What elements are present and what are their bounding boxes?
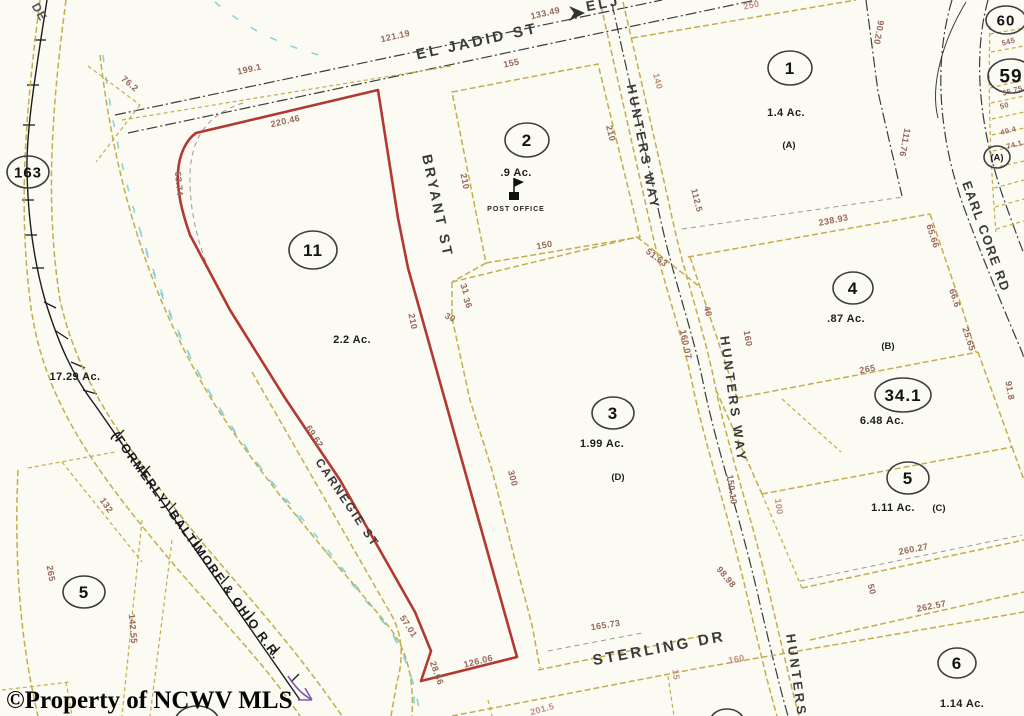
dim-label: 140 — [651, 72, 665, 90]
acreage-label: 1.14 Ac. — [940, 698, 984, 710]
post-office-icon — [509, 178, 524, 200]
dim-label: 36 — [461, 296, 474, 310]
parcel-number: 5 — [903, 469, 913, 488]
poi-label: POST OFFICE — [487, 206, 545, 213]
dim-label: 238.93 — [818, 212, 849, 228]
dim-label: 262.57 — [916, 598, 947, 614]
parcel-number: (A) — [990, 152, 1003, 163]
parcel-marker-3: 3 — [592, 397, 634, 429]
parcel-marker-2: 2 — [505, 123, 549, 157]
dim-label: 91.8 — [1003, 380, 1016, 401]
street-label-carnegie: CARNEGIE ST — [312, 456, 382, 550]
sub-letter-label: (A) — [782, 140, 795, 151]
sub-letter-label: (D) — [611, 472, 624, 483]
dim-label: 63.74 — [173, 171, 185, 196]
railroad-track — [22, 0, 312, 700]
dim-label: 265 — [45, 565, 58, 583]
street-labels: EL JADID ST ELJ BRYANT ST HUNTERS WAY HU… — [29, 0, 1014, 716]
acreage-label: 6.48 Ac. — [860, 415, 904, 427]
dim-label: 210 — [458, 172, 471, 190]
street-label-sterling: STERLING DR — [591, 628, 727, 669]
dim-label: 98.98 — [715, 564, 738, 589]
dim-label: 150 — [536, 239, 554, 252]
acreage-label: 1.4 Ac. — [767, 107, 805, 119]
parcel-number: 11 — [303, 241, 323, 260]
parcel-marker-34-1: 34.1 — [875, 378, 931, 412]
acreage-labels: 2.2 Ac. .9 Ac. 1.4 Ac. (A) .87 Ac. (B) 6… — [50, 107, 985, 710]
dim-label: 65.66 — [924, 223, 941, 249]
street-label-hunters-mid: HUNTERS WAY — [717, 335, 750, 464]
dim-label: 265 — [859, 363, 877, 376]
dim-label: 210 — [406, 312, 419, 330]
parcel-number: 2 — [522, 131, 532, 150]
parcel-marker-11: 11 — [289, 231, 337, 269]
parcel-markers: 163 11 2 1 4 34.1 5 3 — [7, 6, 1024, 716]
parcel-number: 4 — [848, 279, 858, 298]
dim-label: 132 — [98, 496, 115, 515]
acreage-label: 1.99 Ac. — [580, 438, 624, 450]
dim-label: 50 — [999, 100, 1010, 111]
dim-label: 250 — [742, 0, 760, 12]
dim-label: 40 — [702, 305, 714, 318]
acreage-label: 17.29 Ac. — [50, 371, 101, 383]
parcel-marker-partial — [710, 709, 744, 716]
parcel-number: 34.1 — [884, 386, 921, 405]
dim-label: 150.10 — [725, 474, 739, 505]
sub-letter-label: (C) — [932, 503, 945, 514]
parcel-marker-A: (A) — [984, 146, 1010, 168]
dim-label: 100 — [773, 498, 785, 515]
parcel-number: 1 — [785, 59, 795, 78]
parcel-number: 5 — [79, 583, 89, 602]
parcel-number: 3 — [608, 404, 618, 423]
dim-label: 300 — [506, 469, 520, 487]
acreage-label: 2.2 Ac. — [333, 334, 371, 346]
dim-label: 160.07 — [678, 329, 694, 360]
dim-label: 201.5 — [529, 701, 555, 716]
street-label-bryant: BRYANT ST — [419, 153, 457, 259]
parcel-marker-5-west: 5 — [63, 576, 105, 608]
dim-label: 28.66 — [428, 660, 446, 686]
dim-label: 51.63 — [644, 246, 670, 269]
dim-label: 40.4 — [999, 124, 1017, 137]
old-boundary-lines — [190, 103, 1022, 651]
dim-label: 15 — [670, 669, 681, 681]
dim-label: 31 — [458, 282, 471, 296]
parcel-marker-60: 60 — [986, 6, 1024, 34]
dim-label: 90.20 — [872, 20, 886, 46]
dim-label: 25.65 — [960, 326, 977, 352]
watermark-text: ©Property of NCWV MLS — [6, 687, 292, 714]
dim-label: 160 — [742, 330, 755, 348]
dim-label: 50 — [866, 583, 878, 596]
dim-label: 30 — [443, 310, 457, 324]
acreage-label: .9 Ac. — [500, 167, 531, 179]
dim-label: 155 — [502, 56, 520, 69]
parcel-number: 60 — [997, 12, 1016, 29]
acreage-label: .87 Ac. — [827, 313, 865, 325]
dim-label: 545 — [1001, 35, 1017, 47]
dim-label: 133.49 — [530, 5, 561, 21]
sub-letter-label: (B) — [881, 341, 894, 352]
dim-label: 142.55 — [127, 613, 140, 644]
dim-label: 111.76 — [898, 127, 913, 157]
dim-label: 210 — [604, 124, 618, 142]
dim-label: 69.62 — [304, 423, 326, 449]
street-label-earl-core: EARL CORE RD — [959, 179, 1013, 294]
plat-map-canvas: 163 11 2 1 4 34.1 5 3 — [0, 0, 1024, 716]
dim-label: 165.73 — [590, 618, 621, 633]
dim-label: 74.1 — [1005, 138, 1023, 151]
dim-label: 76.2 — [119, 74, 140, 94]
railroad-ties-icon — [22, 40, 299, 682]
parcel-marker-6: 6 — [938, 648, 976, 678]
dim-label: 121.19 — [380, 28, 411, 44]
acreage-label: 1.11 Ac. — [871, 502, 915, 514]
parcel-marker-4: 4 — [833, 272, 873, 304]
parcel-number: 6 — [952, 654, 962, 673]
dim-label: 260.27 — [898, 541, 929, 557]
route-marker-label: 163 — [14, 164, 42, 181]
parcel-boundary-lines — [2, 0, 1024, 716]
plat-map: 163 11 2 1 4 34.1 5 3 — [0, 0, 1024, 716]
street-arrow-icon — [569, 6, 585, 21]
dim-label: 66.6 — [947, 287, 962, 308]
parcel-marker-1: 1 — [768, 51, 812, 85]
dim-label: 112.5 — [689, 187, 705, 213]
street-label-hunters-lower: HUNTERS — [783, 633, 810, 716]
dim-label: 199.1 — [236, 61, 262, 76]
dim-label: 160 — [728, 653, 746, 666]
street-label-el-jadid: EL JADID ST — [414, 20, 539, 64]
